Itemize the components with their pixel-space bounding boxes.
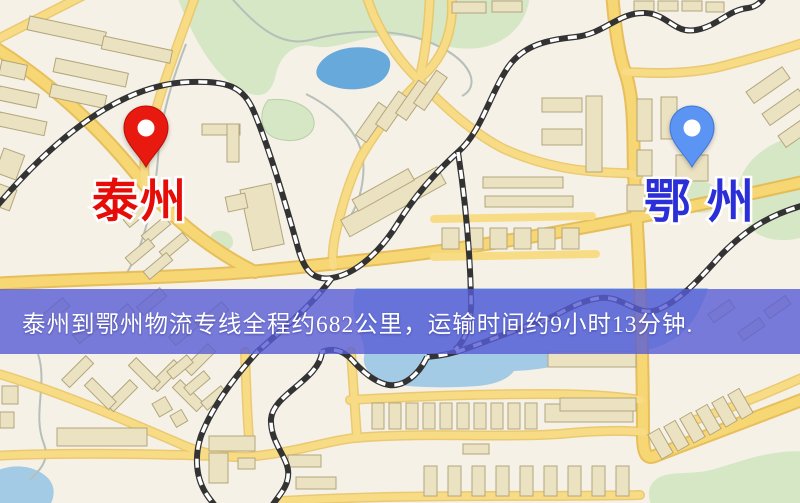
destination-label-text: 鄂州 (644, 177, 770, 229)
destination-label: 鄂州 (638, 172, 800, 234)
banner-text: 泰州到鄂州物流专线全程约682公里，运输时间约9小时13分钟. (22, 305, 693, 339)
map-canvas[interactable]: 泰州 鄂州 泰州到鄂州物流专线全程约682公里，运输时间约9小时13分钟. (0, 0, 800, 503)
origin-label: 泰州 (84, 170, 304, 232)
origin-pin-icon[interactable] (122, 105, 170, 169)
info-banner: 泰州到鄂州物流专线全程约682公里，运输时间约9小时13分钟. (0, 289, 800, 354)
destination-pin-icon[interactable] (668, 105, 716, 169)
origin-pin-hole (138, 120, 155, 137)
map-image (0, 0, 800, 503)
origin-label-text: 泰州 (92, 176, 188, 227)
destination-pin-hole (684, 120, 701, 137)
